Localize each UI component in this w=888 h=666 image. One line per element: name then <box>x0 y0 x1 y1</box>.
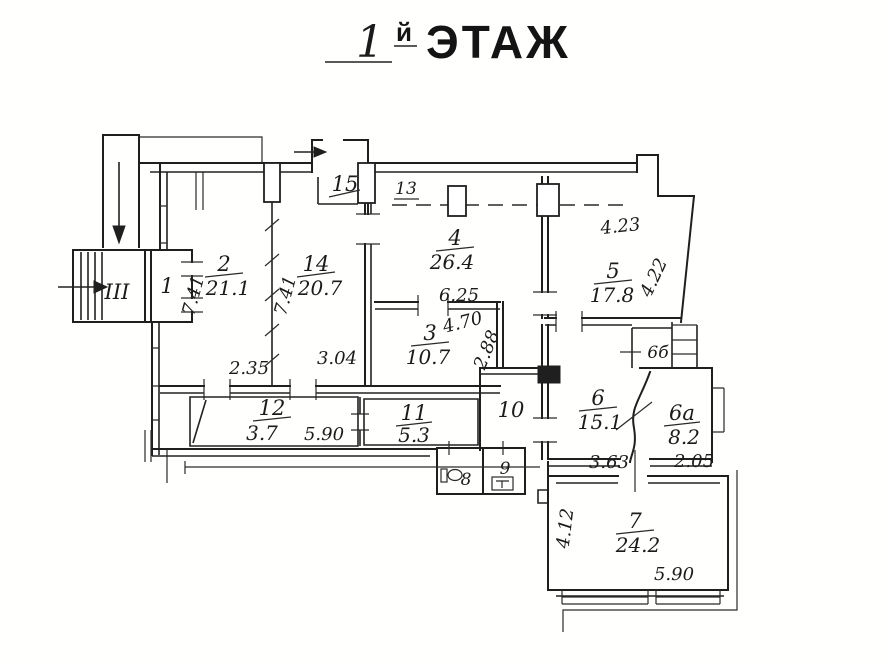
room-6-area: 15.1 <box>578 410 623 434</box>
title-floor-suffix: й <box>396 17 412 47</box>
column <box>448 186 466 216</box>
room-7-number: 7 <box>628 509 642 533</box>
room-14-number: 14 <box>303 252 330 276</box>
dim-room14-width: 3.04 <box>317 348 357 369</box>
dim-room2-width: 2.35 <box>228 358 269 379</box>
room-6-number: 6 <box>591 386 604 410</box>
room-11-area: 5.3 <box>398 423 430 447</box>
room-10-number: 10 <box>498 398 525 422</box>
dim-corridor-width: 5.90 <box>304 424 344 445</box>
room-6a-number: 6а <box>669 401 695 425</box>
dim-room14-depth: 7.41 <box>270 274 301 318</box>
floor-plan-drawing: 1 й ЭТАЖ <box>0 0 888 666</box>
toilet-icon <box>441 469 462 482</box>
room-12-area: 3.7 <box>246 421 278 445</box>
dim-room3-depth: 2.88 <box>469 327 504 373</box>
column <box>264 163 280 202</box>
room-6b-number: 6б <box>647 343 669 363</box>
dim-room6a-width: 2.05 <box>673 451 714 472</box>
room-7-area: 24.2 <box>615 533 661 557</box>
room-9-number: 9 <box>500 459 511 479</box>
room-2-area: 21.1 <box>205 276 251 300</box>
column <box>358 163 375 203</box>
title-floor-number: 1 <box>356 17 384 68</box>
dim-room5-depth: 4.22 <box>636 255 672 301</box>
floor-plan-page: 1 й ЭТАЖ <box>0 0 888 666</box>
room-2-number: 2 <box>216 252 230 276</box>
dim-room7-width: 5.90 <box>654 564 694 585</box>
room-1-number: 1 <box>160 274 173 298</box>
room-4-number: 4 <box>447 226 461 250</box>
title-block: 1 й ЭТАЖ <box>325 16 571 68</box>
room-13-number: 13 <box>395 179 417 199</box>
walls <box>73 135 737 632</box>
stair-down-arrow <box>113 162 125 243</box>
room-3-number: 3 <box>423 321 436 345</box>
dim-room3-width: 4.70 <box>440 308 485 338</box>
room-4-area: 26.4 <box>429 250 475 274</box>
dim-room5-width: 4.23 <box>598 214 641 239</box>
dim-room3-top: 6.25 <box>439 285 479 306</box>
room-5-area: 17.8 <box>590 283 635 307</box>
room-11-number: 11 <box>401 401 428 425</box>
room-5-number: 5 <box>606 259 619 283</box>
room-6a-area: 8.2 <box>668 425 700 449</box>
entrance-arrow <box>58 281 107 293</box>
column <box>537 184 559 216</box>
entrance-label: III <box>104 280 131 304</box>
vestibule-door-arrow <box>294 147 326 157</box>
room-12-number: 12 <box>259 396 286 420</box>
room-3-area: 10.7 <box>406 345 451 369</box>
vent-shaft <box>538 366 560 383</box>
room-14-area: 20.7 <box>297 276 343 300</box>
dim-room7-depth: 4.12 <box>553 507 579 550</box>
title-floor-word: ЭТАЖ <box>426 16 571 68</box>
room-8-number: 8 <box>461 470 472 490</box>
room-15-number: 15 <box>332 172 359 196</box>
dim-room2-depth: 7.41 <box>178 274 209 318</box>
dim-room6-width: 3.63 <box>589 452 629 473</box>
